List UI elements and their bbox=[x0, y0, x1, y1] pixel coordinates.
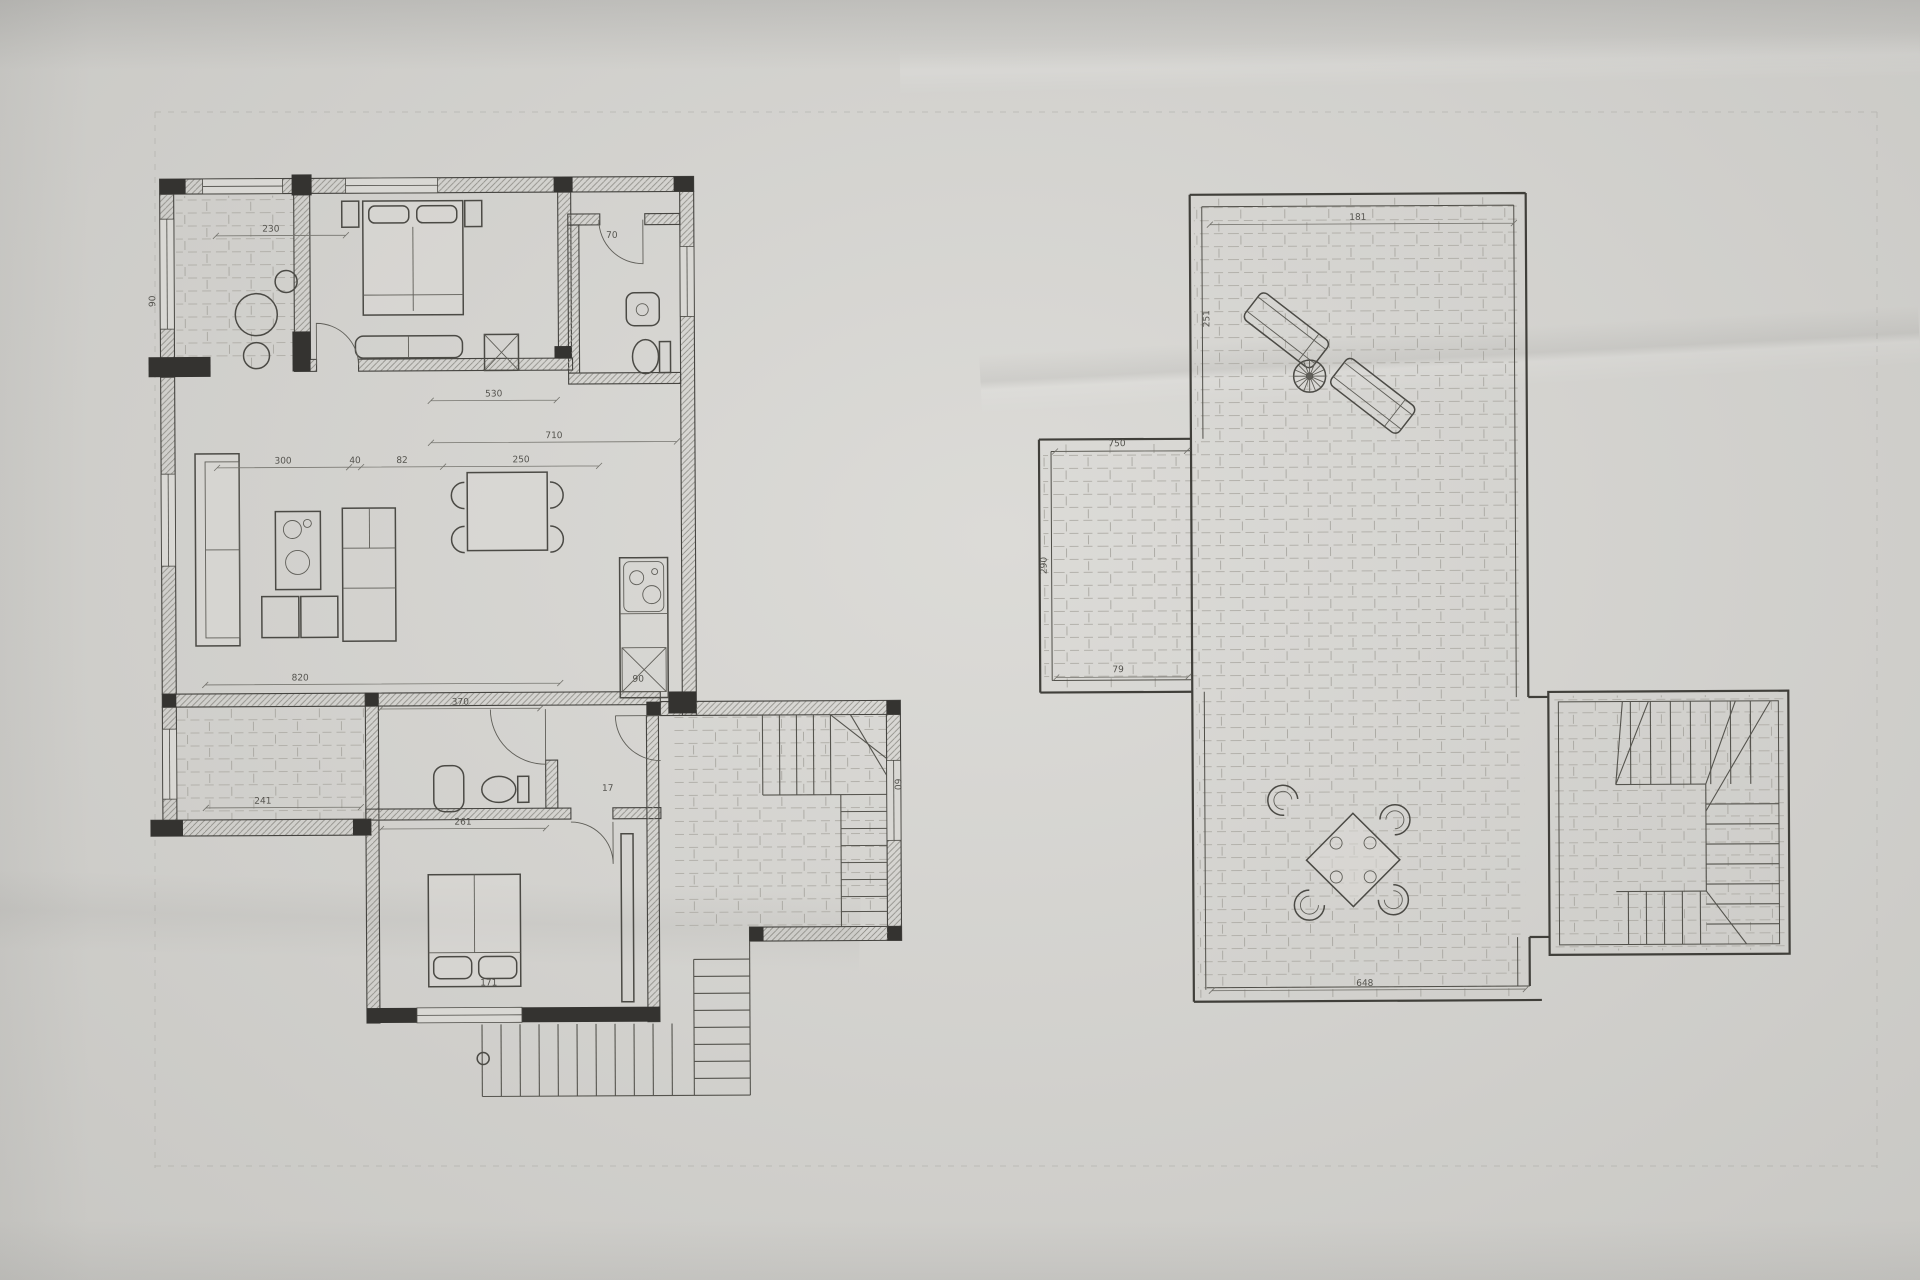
floor-plan-right: 181 750 79 290 251 648 bbox=[1038, 192, 1790, 1003]
sofa-icon bbox=[195, 454, 240, 646]
dimension-label: 370 bbox=[452, 698, 470, 708]
stair-icon bbox=[477, 1023, 750, 1096]
wardrobe-icon bbox=[621, 834, 634, 1002]
dimension-label: 90 bbox=[632, 675, 644, 685]
window bbox=[680, 246, 694, 316]
dimension-label: 70 bbox=[606, 231, 618, 241]
door-arc-icon bbox=[599, 220, 643, 264]
dimension-label: 290 bbox=[1040, 557, 1050, 575]
stove-icon bbox=[275, 511, 320, 589]
floor-plan-drawing: 230 70 530 710 300 40 82 250 90 820 370 … bbox=[0, 0, 1920, 1280]
dimension-label: 300 bbox=[274, 456, 292, 466]
bedside-table-icon bbox=[465, 200, 482, 226]
dimension-label: 17 bbox=[602, 784, 614, 794]
dimension-label: 82 bbox=[396, 456, 408, 466]
bedside-table-icon bbox=[342, 201, 359, 227]
washbasin-icon bbox=[626, 293, 659, 326]
dimension-label: 820 bbox=[292, 673, 310, 683]
floor-plan-left: 230 70 530 710 300 40 82 250 90 820 370 … bbox=[148, 171, 904, 1098]
kitchen-counter-icon bbox=[620, 558, 669, 698]
dimension-label: 250 bbox=[512, 455, 530, 465]
parasol-icon bbox=[1294, 360, 1326, 392]
toilet-icon bbox=[632, 340, 670, 374]
window bbox=[162, 729, 176, 799]
dimension-label: 171 bbox=[480, 978, 497, 988]
washbasin-icon bbox=[434, 766, 464, 812]
stair-icon bbox=[694, 941, 751, 1095]
door-arc-icon bbox=[490, 709, 545, 764]
wardrobe-icon bbox=[355, 336, 462, 359]
dimension-label: 710 bbox=[545, 431, 563, 441]
bed-icon bbox=[428, 874, 521, 986]
dimension-label: 251 bbox=[1202, 310, 1212, 327]
dimension-label: 750 bbox=[1108, 439, 1126, 449]
dimension-label: 181 bbox=[1349, 213, 1366, 223]
door-arc-icon bbox=[571, 822, 613, 864]
dining-table-icon bbox=[451, 472, 563, 553]
window bbox=[417, 1007, 522, 1023]
dimension-label: 90 bbox=[148, 295, 158, 307]
window bbox=[160, 219, 175, 329]
dimension-label: 648 bbox=[1356, 979, 1374, 989]
terrace-upper-floor bbox=[176, 195, 295, 368]
window bbox=[161, 474, 175, 566]
window bbox=[887, 760, 901, 840]
window bbox=[346, 178, 438, 193]
tv-cabinet-icon bbox=[342, 508, 396, 641]
dimension-label: 60 bbox=[892, 779, 902, 791]
bed-icon bbox=[363, 201, 464, 316]
toilet-icon bbox=[482, 776, 529, 802]
dimension-label: 79 bbox=[1112, 665, 1124, 675]
dimension-label: 261 bbox=[454, 818, 471, 828]
dimension-label: 40 bbox=[349, 456, 361, 466]
coffee-table-icon bbox=[262, 596, 338, 637]
door-arc-icon bbox=[316, 323, 358, 365]
dimension-label: 241 bbox=[254, 797, 271, 807]
paper-sheet: 230 70 530 710 300 40 82 250 90 820 370 … bbox=[0, 0, 1920, 1280]
dimension-label: 530 bbox=[485, 389, 503, 399]
dimension-label: 230 bbox=[262, 225, 280, 235]
window bbox=[203, 179, 283, 194]
roof-terrace-floor bbox=[1043, 443, 1196, 689]
